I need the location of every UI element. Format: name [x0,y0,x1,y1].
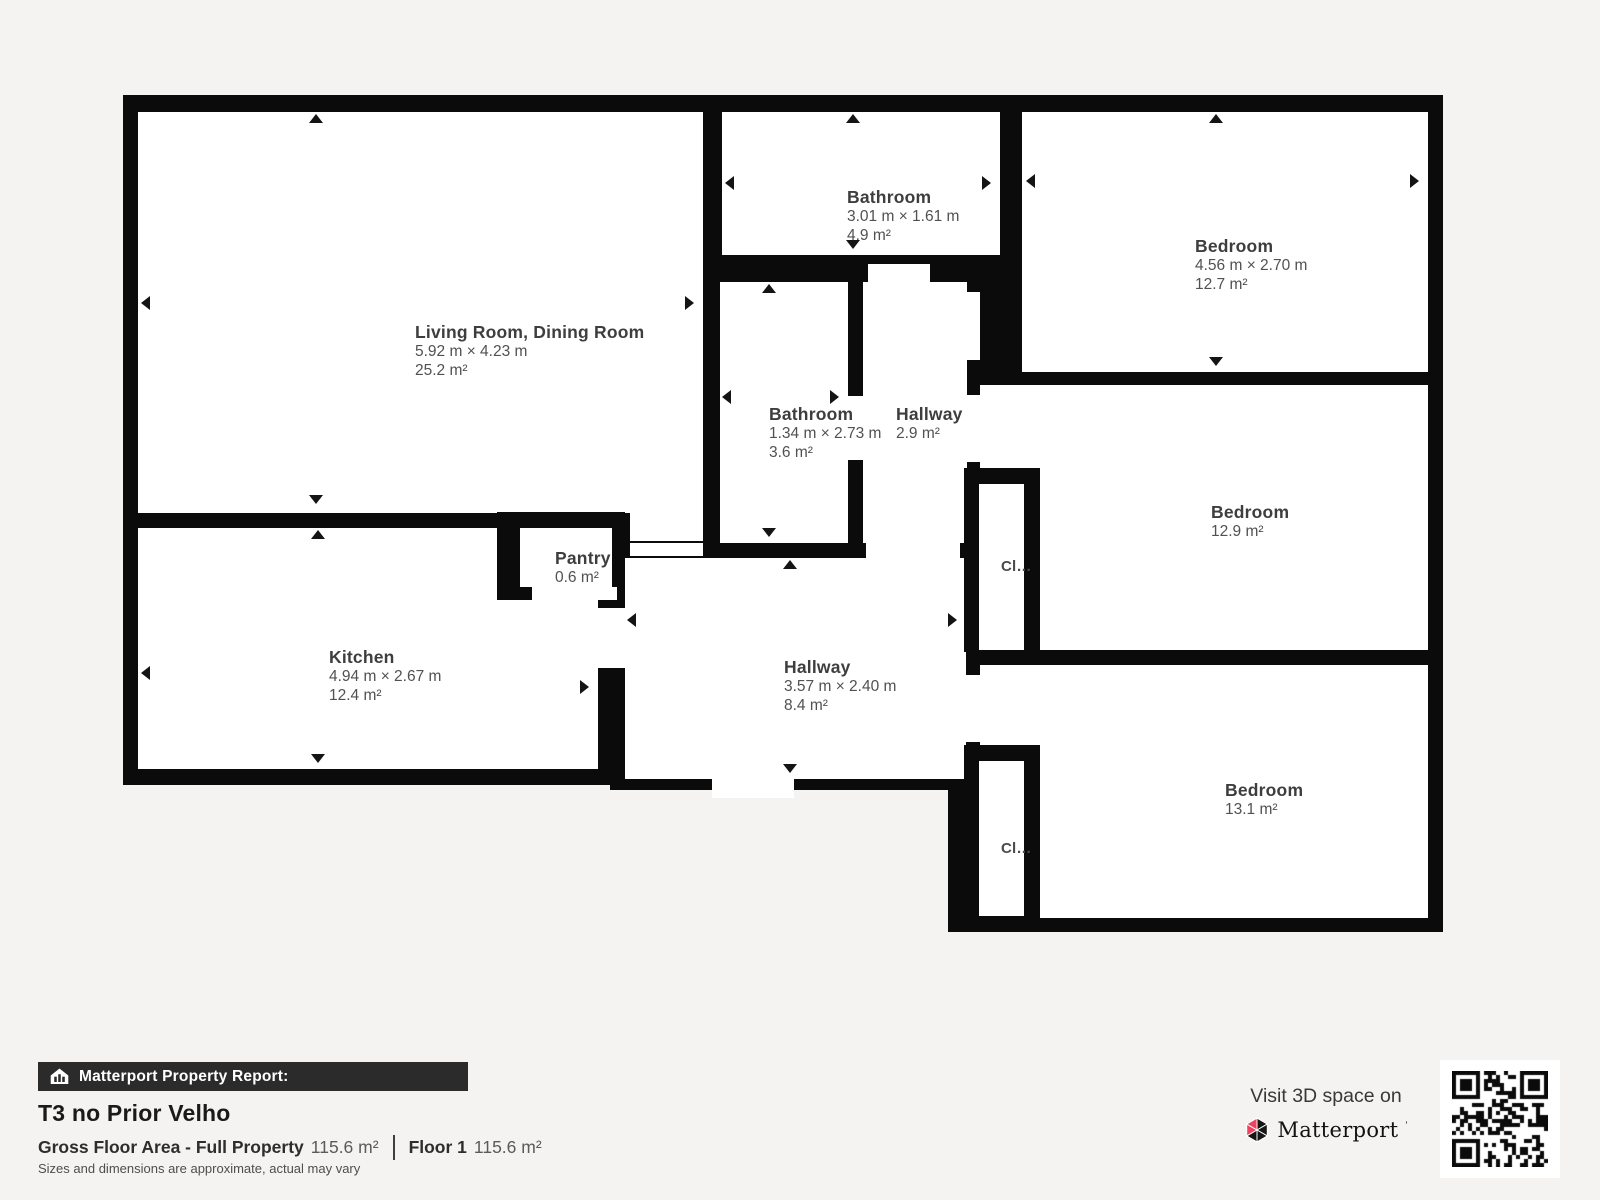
dimension-arrow [580,680,589,694]
dimension-arrow [141,296,150,310]
dimension-arrow [309,114,323,123]
floor-label: Floor 1 [409,1137,467,1158]
dimension-arrow [846,114,860,123]
dimension-arrow [725,176,734,190]
gfa-label: Gross Floor Area - Full Property [38,1137,304,1158]
house-report-icon [50,1068,69,1085]
matterport-floor-plan-page: Living Room, Dining Room5.92 m × 4.23 m2… [0,0,1600,1200]
dimension-arrow [846,240,860,249]
dimension-arrow [948,613,957,627]
dimension-arrow [762,528,776,537]
door-opening [598,608,625,668]
door-opening [967,292,980,360]
floor-value: 115.6 m² [474,1137,542,1158]
gfa-value: 115.6 m² [311,1137,379,1158]
dimension-arrow [1410,174,1419,188]
matterport-pinwheel-icon [1244,1117,1270,1143]
dimension-arrow [627,613,636,627]
property-title: T3 no Prior Velho [38,1100,231,1127]
stats-divider [393,1135,395,1160]
dimension-arrow [311,530,325,539]
dimension-arrow [1026,174,1035,188]
dimension-arrow [783,560,797,569]
door-opening [868,264,930,282]
disclaimer: Sizes and dimensions are approximate, ac… [38,1161,360,1176]
qr-code [1440,1060,1560,1178]
floor-plan: Living Room, Dining Room5.92 m × 4.23 m2… [0,0,1600,1200]
dimension-arrow [722,390,731,404]
qr-code-pattern [1452,1071,1548,1167]
door-opening [532,587,617,600]
report-bar-label: Matterport Property Report: [79,1068,289,1086]
door-opening [967,395,980,462]
matterport-trademark: ʼ [1405,1121,1407,1132]
dimension-arrow [685,296,694,310]
dimension-arrow [311,754,325,763]
dimension-arrow [1209,114,1223,123]
visit-text: Visit 3D space on [1228,1085,1424,1108]
dimension-arrow [1209,357,1223,366]
dimension-arrow [762,284,776,293]
area-stats: Gross Floor Area - Full Property 115.6 m… [38,1135,542,1160]
door-opening [630,543,703,556]
report-bar: Matterport Property Report: [38,1062,468,1091]
room-living-dining-room [138,112,703,513]
door-opening [712,770,794,798]
matterport-logo: Matterport ʼ [1228,1117,1424,1143]
door-opening [966,675,980,742]
dimension-arrow [783,764,797,773]
room-bedroom-2 [980,385,1428,650]
dimension-arrow [309,495,323,504]
dimension-arrow [982,176,991,190]
dimension-arrow [141,666,150,680]
room-living-dining-room [630,513,703,541]
room-bedroom-3 [980,665,1428,918]
visit-3d-cta: Visit 3D space on Matterport ʼ [1228,1085,1424,1143]
matterport-wordmark: Matterport [1277,1118,1398,1142]
room-closet-2 [979,761,1024,916]
door-opening [866,543,960,558]
dimension-arrow [830,390,839,404]
